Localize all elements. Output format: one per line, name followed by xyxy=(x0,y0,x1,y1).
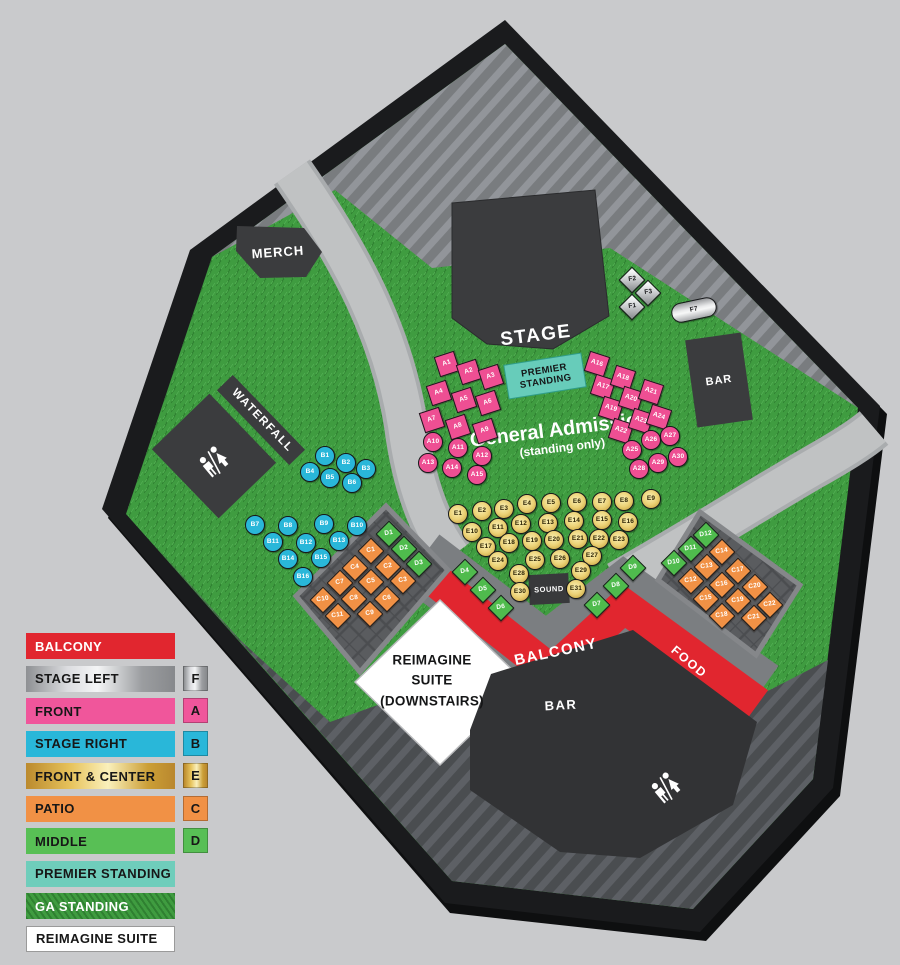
seat-D6[interactable]: D6 xyxy=(492,599,511,618)
seat-B7[interactable]: B7 xyxy=(245,515,265,535)
legend-row-stage-right: STAGE RIGHTB xyxy=(26,731,241,757)
seat-D9[interactable]: D9 xyxy=(624,559,643,578)
seat-E7[interactable]: E7 xyxy=(592,492,612,512)
seat-label: A25 xyxy=(626,447,639,454)
seat-label: A26 xyxy=(645,437,658,444)
seat-A5[interactable]: A5 xyxy=(454,390,475,411)
legend-badge-F: F xyxy=(183,666,208,691)
legend-swatch-ga-standing: GA STANDING xyxy=(26,893,175,919)
seat-A9[interactable]: A9 xyxy=(475,421,496,442)
seat-E31[interactable]: E31 xyxy=(566,579,586,599)
seat-B5[interactable]: B5 xyxy=(320,468,340,488)
seat-label: A28 xyxy=(633,466,646,473)
seat-label: E8 xyxy=(620,498,628,505)
seat-A21[interactable]: A21 xyxy=(641,382,662,403)
seat-label: A29 xyxy=(652,460,665,467)
seat-C22[interactable]: C22 xyxy=(761,596,780,615)
seat-E15[interactable]: E15 xyxy=(592,510,612,530)
seat-label: E4 xyxy=(523,501,531,508)
seat-E18[interactable]: E18 xyxy=(499,533,519,553)
seat-label: E9 xyxy=(647,496,655,503)
legend-row-reimagine-suite: REIMAGINE SUITE xyxy=(26,926,241,952)
seat-A26[interactable]: A26 xyxy=(641,430,661,450)
seat-label: E11 xyxy=(492,525,504,532)
seat-label: B16 xyxy=(297,574,310,581)
seat-label: A30 xyxy=(672,454,685,461)
seat-A16[interactable]: A16 xyxy=(587,354,608,375)
seat-label: E17 xyxy=(480,544,492,551)
legend-swatch-patio: PATIO xyxy=(26,796,175,822)
seat-B16[interactable]: B16 xyxy=(293,567,313,587)
seat-label: E13 xyxy=(542,520,554,527)
seat-label: E10 xyxy=(466,529,478,536)
seat-label: F2 xyxy=(628,276,637,284)
seat-label: E16 xyxy=(622,519,634,526)
seat-C11[interactable]: C11 xyxy=(329,607,348,626)
seat-D4[interactable]: D4 xyxy=(456,563,475,582)
seat-C20[interactable]: C20 xyxy=(746,578,765,597)
seat-A24[interactable]: A24 xyxy=(649,407,670,428)
legend-row-premier-standing: PREMIER STANDING xyxy=(26,861,241,887)
seat-E24[interactable]: E24 xyxy=(488,551,508,571)
seat-F1[interactable]: F1 xyxy=(623,298,642,317)
seat-label: E29 xyxy=(575,568,587,575)
legend-swatch-front-center: FRONT & CENTER xyxy=(26,763,175,789)
legend-row-balcony: BALCONY xyxy=(26,633,241,659)
legend-swatch-middle: MIDDLE xyxy=(26,828,175,854)
seat-A28[interactable]: A28 xyxy=(629,459,649,479)
seat-B14[interactable]: B14 xyxy=(278,549,298,569)
seat-B13[interactable]: B13 xyxy=(329,531,349,551)
seat-label: A13 xyxy=(422,460,435,467)
seat-B6[interactable]: B6 xyxy=(342,473,362,493)
seat-C9[interactable]: C9 xyxy=(361,605,380,624)
seat-B15[interactable]: B15 xyxy=(311,548,331,568)
seat-A30[interactable]: A30 xyxy=(668,447,688,467)
seat-label: B4 xyxy=(306,469,315,476)
seat-A6[interactable]: A6 xyxy=(478,393,499,414)
legend-swatch-stage-left: STAGE LEFT xyxy=(26,666,175,692)
legend-swatch-stage-right: STAGE RIGHT xyxy=(26,731,175,757)
seat-E4[interactable]: E4 xyxy=(517,494,537,514)
seat-label: E15 xyxy=(596,517,608,524)
seat-label: E19 xyxy=(526,538,538,545)
legend-badge-A: A xyxy=(183,698,208,723)
seat-label: A12 xyxy=(476,453,489,460)
seat-label: F3 xyxy=(644,289,653,297)
seat-E30[interactable]: E30 xyxy=(510,582,530,602)
seat-label: B13 xyxy=(333,538,346,545)
seat-E29[interactable]: E29 xyxy=(571,561,591,581)
seat-label: E28 xyxy=(513,571,525,578)
seat-A27[interactable]: A27 xyxy=(660,426,680,446)
seat-label: E21 xyxy=(572,536,584,543)
seat-label: B10 xyxy=(351,523,364,530)
seat-E16[interactable]: E16 xyxy=(618,512,638,532)
seat-label: A11 xyxy=(452,445,464,452)
legend-badge-B: B xyxy=(183,731,208,756)
reimagine-suite-label: REIMAGINE SUITE (DOWNSTAIRS) xyxy=(380,651,484,712)
seat-E14[interactable]: E14 xyxy=(564,511,584,531)
legend-swatch-balcony: BALCONY xyxy=(26,633,175,659)
seat-D8[interactable]: D8 xyxy=(607,577,626,596)
seat-A7[interactable]: A7 xyxy=(422,410,443,431)
seat-label: B1 xyxy=(321,453,330,460)
legend-swatch-premier-standing: PREMIER STANDING xyxy=(26,861,175,887)
seat-label: E12 xyxy=(515,521,527,528)
seat-E6[interactable]: E6 xyxy=(567,492,587,512)
seat-E5[interactable]: E5 xyxy=(541,493,561,513)
legend-row-middle: MIDDLED xyxy=(26,828,241,854)
seat-label: F1 xyxy=(628,303,637,311)
seat-label: E30 xyxy=(514,589,526,596)
seat-E20[interactable]: E20 xyxy=(544,530,564,550)
seat-A15[interactable]: A15 xyxy=(467,465,487,485)
seat-label: E23 xyxy=(613,537,625,544)
seat-B4[interactable]: B4 xyxy=(300,462,320,482)
legend-badge-E: E xyxy=(183,763,208,788)
seat-label: E26 xyxy=(554,556,566,563)
seat-D3[interactable]: D3 xyxy=(410,555,429,574)
seat-label: B8 xyxy=(284,523,293,530)
legend-row-stage-left: STAGE LEFTF xyxy=(26,666,241,692)
seat-A8[interactable]: A8 xyxy=(448,417,469,438)
seat-label: E18 xyxy=(503,540,515,547)
seat-label: E3 xyxy=(500,506,508,513)
seat-D7[interactable]: D7 xyxy=(588,596,607,615)
seat-label: E31 xyxy=(570,586,582,593)
seat-label: B7 xyxy=(251,522,260,529)
legend-swatch-front: FRONT xyxy=(26,698,175,724)
seat-label: B9 xyxy=(320,521,329,528)
seat-label: E1 xyxy=(454,511,462,518)
seat-A10[interactable]: A10 xyxy=(423,432,443,452)
seat-label: E5 xyxy=(547,500,555,507)
seat-A29[interactable]: A29 xyxy=(648,453,668,473)
seat-label: A10 xyxy=(427,439,440,446)
seat-E28[interactable]: E28 xyxy=(509,564,529,584)
legend-row-front: FRONTA xyxy=(26,698,241,724)
seat-E9[interactable]: E9 xyxy=(641,489,661,509)
seat-label: E6 xyxy=(573,499,581,506)
seat-A12[interactable]: A12 xyxy=(472,446,492,466)
seat-A4[interactable]: A4 xyxy=(429,383,450,404)
seat-label: B15 xyxy=(315,555,328,562)
seat-C6[interactable]: C6 xyxy=(378,590,397,609)
seat-D5[interactable]: D5 xyxy=(474,581,493,600)
seat-label: B11 xyxy=(267,539,279,546)
seat-A2[interactable]: A2 xyxy=(459,362,480,383)
sound-label: SOUND xyxy=(534,585,564,595)
legend-badge-C: C xyxy=(183,796,208,821)
seat-A18[interactable]: A18 xyxy=(613,368,634,389)
seat-E23[interactable]: E23 xyxy=(609,530,629,550)
seat-label: E25 xyxy=(529,557,541,564)
legend-swatch-reimagine-suite: REIMAGINE SUITE xyxy=(26,926,175,952)
seat-label: E24 xyxy=(492,558,504,565)
seat-label: B6 xyxy=(348,480,357,487)
legend-badge-D: D xyxy=(183,828,208,853)
legend-row-front-center: FRONT & CENTERE xyxy=(26,763,241,789)
seat-label: B3 xyxy=(362,466,371,473)
seat-label: E14 xyxy=(568,518,580,525)
seat-C3[interactable]: C3 xyxy=(394,572,413,591)
seat-B10[interactable]: B10 xyxy=(347,516,367,536)
seat-E19[interactable]: E19 xyxy=(522,531,542,551)
seat-A14[interactable]: A14 xyxy=(442,458,462,478)
seat-label: E7 xyxy=(598,499,606,506)
seat-label: B12 xyxy=(300,540,313,547)
seat-D12[interactable]: D12 xyxy=(697,526,716,545)
seat-C14[interactable]: C14 xyxy=(713,543,732,562)
legend-row-patio: PATIOC xyxy=(26,796,241,822)
seat-label: A14 xyxy=(446,465,459,472)
seat-E8[interactable]: E8 xyxy=(614,491,634,511)
seat-A11[interactable]: A11 xyxy=(448,438,468,458)
seat-A13[interactable]: A13 xyxy=(418,453,438,473)
seat-label: B14 xyxy=(282,556,295,563)
seat-label: A27 xyxy=(664,433,677,440)
seat-label: A15 xyxy=(471,472,484,479)
seat-label: B2 xyxy=(342,460,351,467)
legend: BALCONYSTAGE LEFTFFRONTASTAGE RIGHTBFRON… xyxy=(26,633,241,958)
seat-label: E2 xyxy=(478,508,486,515)
seat-label: E20 xyxy=(548,537,560,544)
seat-A25[interactable]: A25 xyxy=(622,440,642,460)
seat-label: E22 xyxy=(593,536,605,543)
seat-label: B5 xyxy=(326,475,335,482)
seat-E26[interactable]: E26 xyxy=(550,549,570,569)
venue-map-page: STAGE MERCH WATERFALL BAR PREMIER STANDI… xyxy=(0,0,900,965)
seat-A3[interactable]: A3 xyxy=(481,367,502,388)
bar-bottom-label: BAR xyxy=(544,698,577,715)
seat-E1[interactable]: E1 xyxy=(448,504,468,524)
legend-row-ga-standing: GA STANDING xyxy=(26,893,241,919)
seat-label: E27 xyxy=(586,553,598,560)
seat-A1[interactable]: A1 xyxy=(437,354,458,375)
